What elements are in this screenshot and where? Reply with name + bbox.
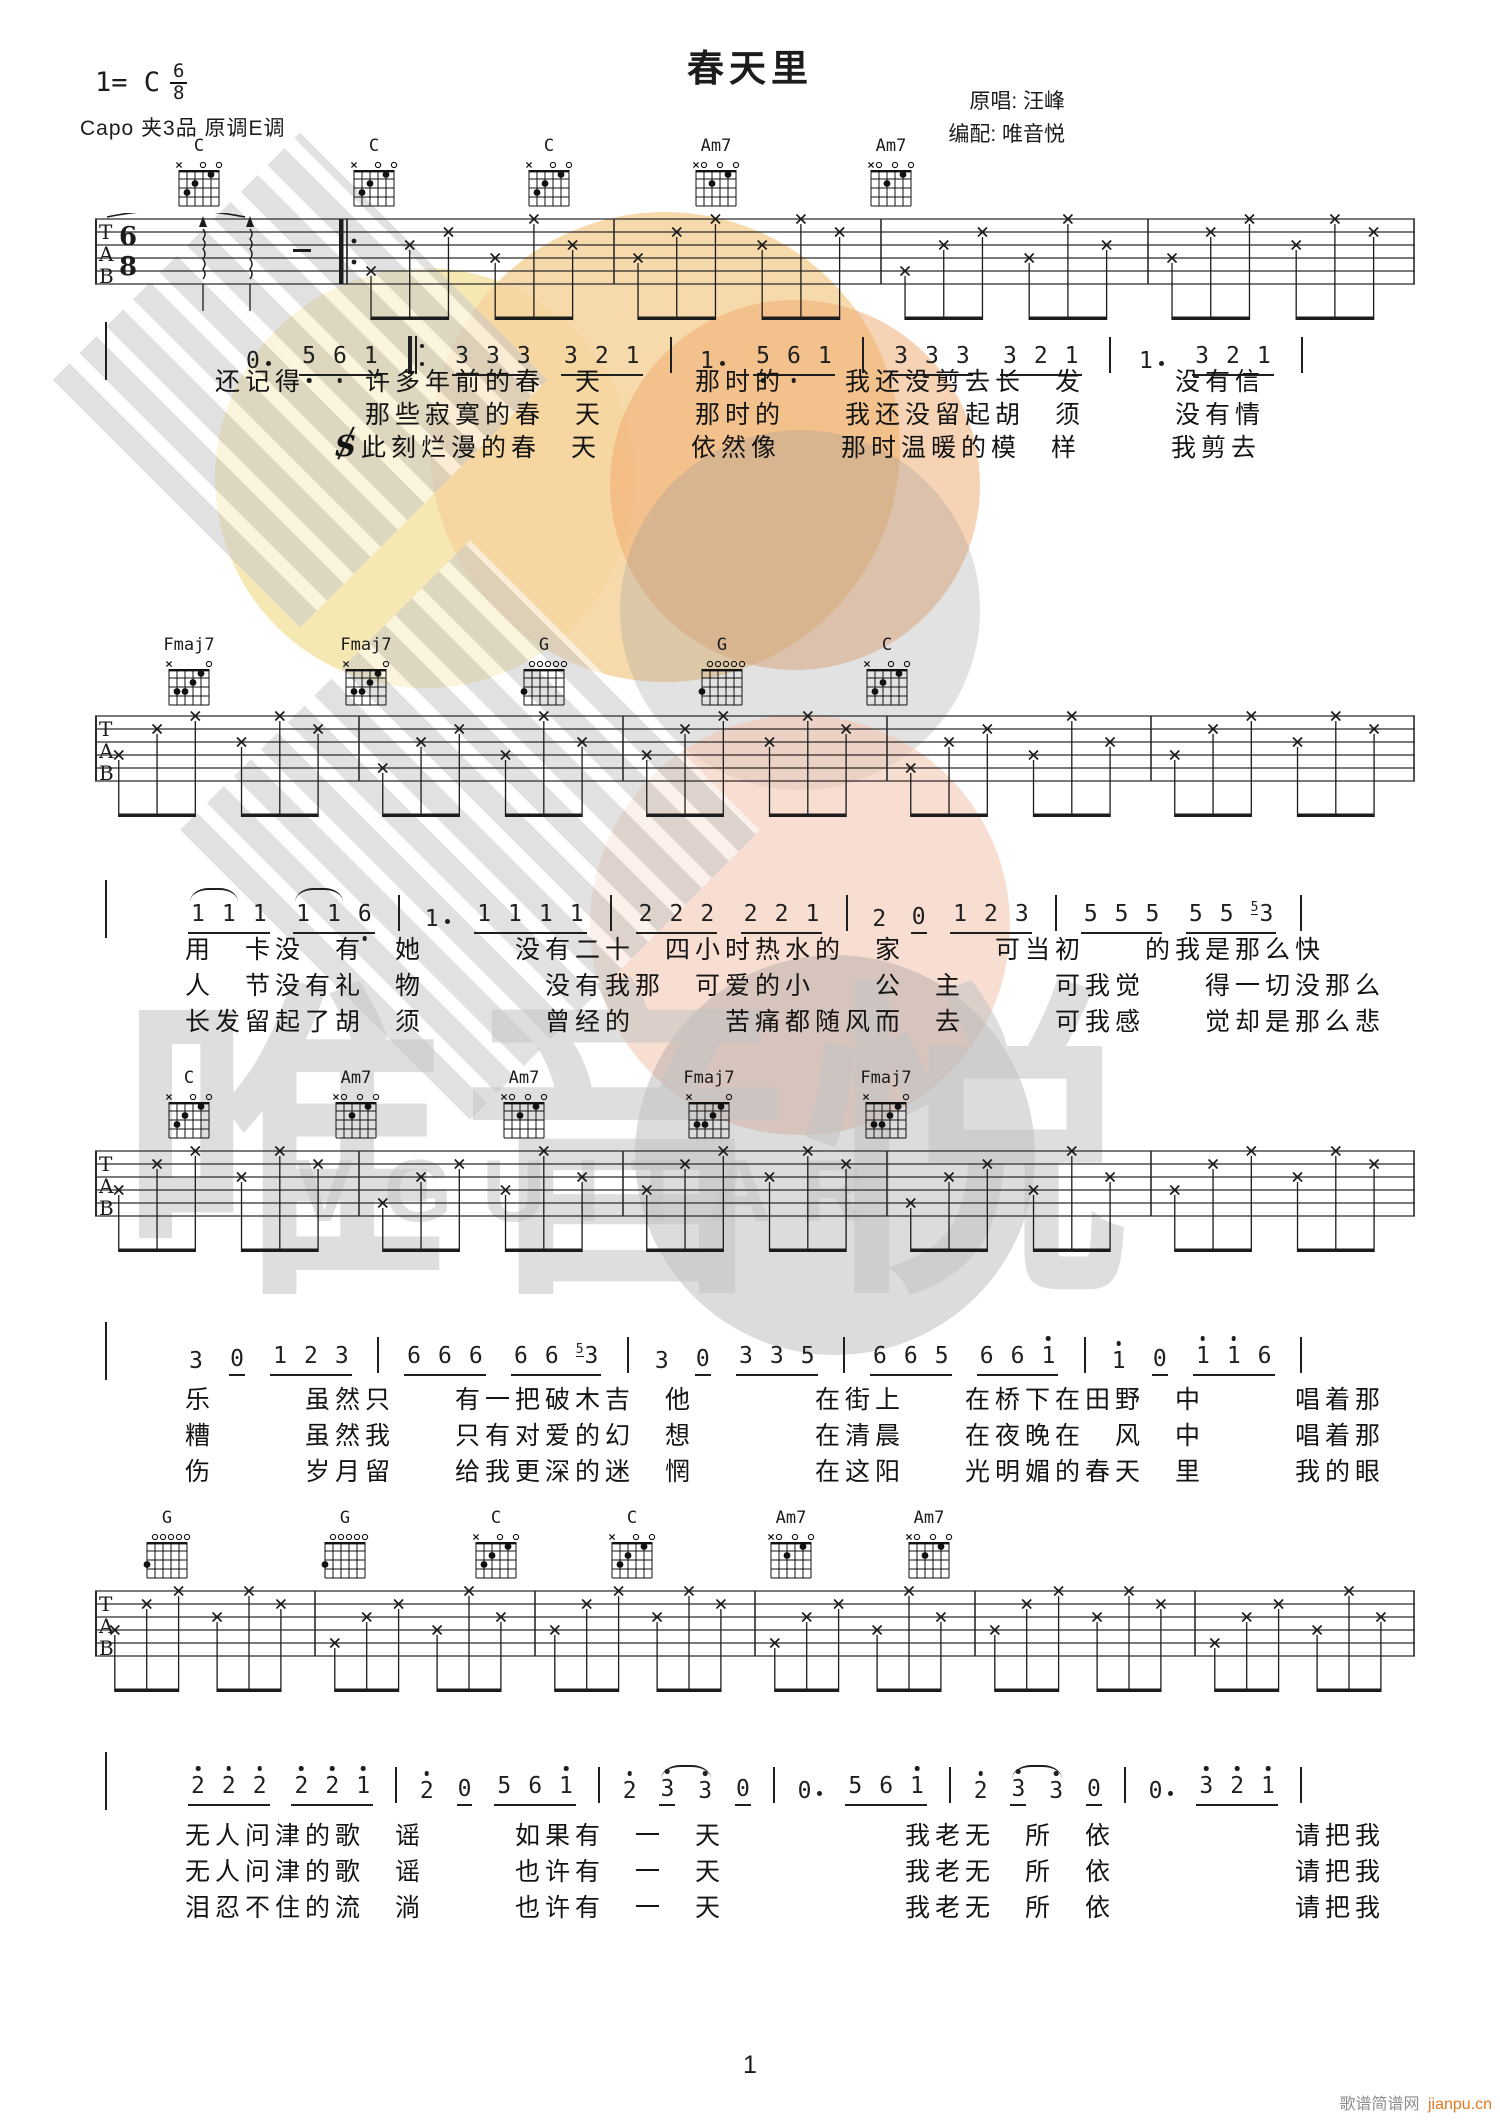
jianpu-note: 2	[221, 1775, 237, 1801]
note-value: 1	[356, 1775, 370, 1798]
note-value: 2	[1230, 1775, 1244, 1798]
octave-dot-high	[1204, 1766, 1209, 1771]
note-value: 5	[1220, 903, 1234, 926]
jianpu-note: 3	[1014, 903, 1030, 929]
chord-name: C	[346, 136, 402, 156]
jianpu-note: 2	[983, 903, 999, 929]
barline	[395, 1767, 397, 1803]
jianpu-beam-group: 321	[1196, 1775, 1278, 1806]
note-value: 6	[879, 1775, 893, 1798]
jianpu-note: 1	[1226, 1345, 1242, 1371]
chord-c: C	[171, 136, 227, 218]
lyric-text: 那些寂寞的春 天 那时的 我还没留起胡 须 没有情	[185, 401, 1265, 429]
site-credit: 歌谱简谱网 jianpu.cn	[1339, 2090, 1492, 2114]
chord-fmaj7: Fmaj7	[161, 635, 217, 717]
chord-name: Am7	[763, 1508, 819, 1528]
note-value: 0	[230, 1348, 244, 1371]
tie-arc	[295, 888, 343, 902]
jianpu-note: 0	[1086, 1778, 1102, 1806]
note-value: 2	[639, 903, 653, 926]
lyric-row: 无人问津的歌 谣 如果有 一 天 我老无 所 依 请把我	[185, 1816, 1385, 1852]
tab-staff: TAB	[95, 1145, 1415, 1273]
tab-staff: TAB	[95, 1585, 1415, 1713]
jianpu-note: 0	[229, 1348, 245, 1376]
jianpu-note: 0	[695, 1348, 711, 1376]
jianpu-note: 1	[221, 903, 237, 929]
jianpu-note: 2	[190, 1775, 206, 1801]
chord-diagram	[143, 1529, 191, 1585]
augmentation-dot	[1168, 1791, 1173, 1796]
note-value: 6	[545, 1345, 559, 1368]
chord-diagram	[863, 656, 911, 712]
chord-name: C	[859, 635, 915, 655]
octave-dot-high	[915, 1766, 920, 1771]
jianpu-note: 2	[1229, 1775, 1245, 1801]
jianpu-note: 1	[272, 1345, 288, 1371]
note-value: 3	[660, 1778, 674, 1801]
jianpu-note: 53	[1250, 903, 1275, 929]
jianpu-note: 5	[1145, 903, 1161, 929]
note-value: 1	[296, 903, 310, 926]
note-value: 2	[420, 1780, 434, 1803]
jianpu-note: 6	[468, 1345, 484, 1371]
jianpu-note: 6	[527, 1775, 543, 1801]
jianpu-note: 2	[743, 903, 759, 929]
note-value: 5	[935, 1345, 949, 1368]
lyric-row: 泪忍不住的流 淌 也许有 一 天 我老无 所 依 请把我	[185, 1888, 1385, 1924]
jianpu-note: 5	[1188, 903, 1204, 929]
chord-name: Fmaj7	[161, 635, 217, 655]
svg-text:T: T	[99, 1592, 113, 1616]
key-signature: 1= C 6 8	[95, 62, 187, 104]
svg-text:A: A	[98, 739, 114, 763]
jianpu-note: 6	[513, 1345, 529, 1371]
time-top: 6	[170, 62, 187, 82]
jianpu-beam-group: 221	[291, 1775, 373, 1806]
lyric-text: 此刻烂漫的春 天 依然像 那时温暖的模 样 我剪去	[361, 434, 1261, 462]
octave-dot-high	[299, 1766, 304, 1771]
note-value: 1	[477, 903, 491, 926]
jianpu-note: 5	[1114, 903, 1130, 929]
note-value: 0	[696, 1348, 710, 1371]
jianpu-note: 3	[659, 1778, 675, 1806]
svg-text:B: B	[99, 264, 114, 288]
barline	[377, 1337, 379, 1373]
jianpu-note: 0	[457, 1778, 473, 1806]
lyric-indent	[185, 434, 335, 462]
segno-icon: S	[335, 429, 361, 463]
jianpu-note: 2	[669, 903, 685, 929]
octave-dot-high	[1235, 1766, 1240, 1771]
octave-dot-high	[1231, 1336, 1236, 1341]
chord-diagram	[867, 157, 915, 213]
note-value: 3	[1049, 1780, 1063, 1803]
jianpu-note: 1	[558, 1775, 574, 1801]
barline	[1300, 1767, 1302, 1803]
chord-name: G	[516, 635, 572, 655]
barline	[610, 895, 612, 931]
jianpu-note: 3	[738, 1345, 754, 1371]
note-value: 1	[910, 1775, 924, 1798]
jianpu-note: 3	[697, 1780, 713, 1806]
note-value: 1	[559, 1775, 573, 1798]
jianpu-note: 6	[903, 1345, 919, 1371]
jianpu-beam-group: 561	[494, 1775, 576, 1806]
jianpu-note: 6	[1257, 1345, 1273, 1371]
jianpu-note: 1	[295, 903, 311, 929]
chord-am7: Am7	[496, 1068, 552, 1150]
note-value: 6	[528, 1775, 542, 1798]
jianpu-note: 0	[1148, 1780, 1175, 1806]
svg-text:B: B	[99, 1636, 114, 1660]
jianpu-note: 5	[934, 1345, 950, 1371]
lyric-row: S此刻烂漫的春 天 依然像 那时温暖的模 样 我剪去	[185, 428, 1261, 464]
jianpu-note: 1	[326, 903, 342, 929]
chord-name: C	[521, 136, 577, 156]
jianpu-note: 5	[847, 1775, 863, 1801]
octave-dot-high	[1201, 1336, 1206, 1341]
jianpu-note: 2	[699, 903, 715, 929]
jianpu-note: 5	[800, 1345, 816, 1371]
note-value: 2	[700, 903, 714, 926]
chord-diagram	[175, 157, 223, 213]
note-value: 2	[744, 903, 758, 926]
jianpu-line: 3012366666533033566566110116	[188, 1326, 1302, 1376]
jianpu-note: 3	[769, 1345, 785, 1371]
jianpu-beam-group: 222	[188, 1775, 270, 1806]
lyric-text: 无人问津的歌 谣 如果有 一 天 我老无 所 依 请把我	[185, 1822, 1385, 1850]
note-value: 2	[623, 1780, 637, 1803]
jianpu-note: 2	[638, 903, 654, 929]
chord-diagram	[520, 656, 568, 712]
chord-c: C	[521, 136, 577, 218]
svg-text:A: A	[98, 1174, 114, 1198]
note-value: 5	[1146, 903, 1160, 926]
note-value: 2	[670, 903, 684, 926]
note-value: 3	[1015, 903, 1029, 926]
note-value: 1	[253, 903, 267, 926]
note-value: 2	[253, 1775, 267, 1798]
lyric-row: 还记得 许多年前的春 天 那时的 我还没剪去长 发 没有信	[185, 362, 1265, 398]
jianpu-note: 2	[293, 1775, 309, 1801]
note-value: 1	[539, 903, 553, 926]
note-value: 0	[458, 1778, 472, 1801]
chord-c: C	[859, 635, 915, 717]
note-value: 1	[1261, 1775, 1275, 1798]
note-value: 0	[1149, 1780, 1163, 1803]
barline	[1301, 337, 1303, 373]
jianpu-note: 1	[569, 903, 585, 929]
chord-c: C	[468, 1508, 524, 1590]
svg-text:6: 6	[119, 222, 137, 252]
chord-diagram	[500, 1089, 548, 1145]
svg-text:B: B	[99, 1196, 114, 1220]
svg-text:B: B	[99, 761, 114, 785]
barline	[1084, 1337, 1086, 1373]
note-value: 2	[222, 1775, 236, 1798]
jianpu-beam-group: 123	[270, 1345, 352, 1376]
lyric-text: 人 节没有礼 物 没有我那 可爱的小 公 主 可我觉 得一切没那么	[185, 972, 1385, 1000]
barline	[627, 1337, 629, 1373]
jianpu-note: 6	[979, 1345, 995, 1371]
jianpu-beam-group: 665	[870, 1345, 952, 1376]
jianpu-beam-group: 666	[404, 1345, 486, 1376]
jianpu-lead-barline	[105, 880, 107, 938]
jianpu-note: 6	[357, 903, 373, 929]
note-value: 2	[304, 1345, 318, 1368]
note-value: 2	[984, 903, 998, 926]
sheet-music-page: 唯音悦 VGUITAR 春天里 1= C 6 8 Capo 夹3品 原调E调 原…	[0, 0, 1500, 2122]
barline	[949, 1767, 951, 1803]
jianpu-note: 3	[1048, 1780, 1064, 1806]
octave-dot-high	[1116, 1341, 1121, 1346]
chord-c: C	[161, 1068, 217, 1150]
jianpu-note: 0	[797, 1780, 824, 1806]
lyric-text: 伤 岁月留 给我更深的迷 惘 在这阳 光明媚的春天 里 我的眼	[185, 1458, 1385, 1486]
jianpu-beam-group: 661	[977, 1345, 1059, 1376]
augmentation-dot	[445, 919, 450, 924]
jianpu-note: 1	[1260, 1775, 1276, 1801]
chord-name: Fmaj7	[681, 1068, 737, 1088]
chord-diagram	[332, 1089, 380, 1145]
jianpu-note: 1	[507, 903, 523, 929]
note-value: 5	[1189, 903, 1203, 926]
chord-name: Am7	[496, 1068, 552, 1088]
lyric-row: 乐 虽然只 有一把破木吉 他 在街上 在桥下在田野 中 唱着那	[185, 1380, 1385, 1416]
jianpu-note: 2	[622, 1780, 638, 1806]
octave-dot-high	[361, 1766, 366, 1771]
jianpu-beam-group: 561	[845, 1775, 927, 1806]
chord-am7: Am7	[688, 136, 744, 218]
barline	[398, 895, 400, 931]
jianpu-note: 6	[406, 1345, 422, 1371]
note-value: 1	[508, 903, 522, 926]
lyric-row: 人 节没有礼 物 没有我那 可爱的小 公 主 可我觉 得一切没那么	[185, 966, 1385, 1002]
note-value: 0	[736, 1778, 750, 1801]
jianpu-note: 6	[437, 1345, 453, 1371]
time-bottom: 8	[170, 82, 187, 104]
note-value: 1	[273, 1345, 287, 1368]
jianpu-note: 1	[476, 903, 492, 929]
barline	[1300, 1337, 1302, 1373]
jianpu-note: 0	[735, 1778, 751, 1806]
tie-arc	[190, 888, 238, 902]
jianpu-note: 3	[1010, 1778, 1026, 1806]
chord-fmaj7: Fmaj7	[338, 635, 394, 717]
jianpu-note: 6	[544, 1345, 560, 1371]
note-value: 0	[1087, 1778, 1101, 1801]
note-value: 1	[1227, 1345, 1241, 1368]
jianpu-note: 53	[575, 1345, 600, 1371]
jianpu-beam-group: 6653	[511, 1345, 601, 1376]
note-value: 2	[294, 1775, 308, 1798]
jianpu-note: 1	[1111, 1350, 1127, 1376]
barline	[1124, 1767, 1126, 1803]
lyric-text: 无人问津的歌 谣 也许有 一 天 我老无 所 依 请把我	[185, 1858, 1385, 1886]
jianpu-note: 5	[1219, 903, 1235, 929]
lyric-row: 那些寂寞的春 天 那时的 我还没留起胡 须 没有情	[185, 395, 1265, 431]
note-value: 0	[912, 906, 926, 929]
note-value: 2	[775, 903, 789, 926]
note-value: 6	[1011, 1345, 1025, 1368]
jianpu-note: 1	[355, 1775, 371, 1801]
note-value: 1	[191, 903, 205, 926]
jianpu-note: 1	[252, 903, 268, 929]
note-value: 6	[469, 1345, 483, 1368]
barline	[773, 1767, 775, 1803]
note-value: 3	[698, 1780, 712, 1803]
note-value: 0	[798, 1780, 812, 1803]
note-value: 5	[1115, 903, 1129, 926]
note-value: 1	[425, 908, 439, 931]
chord-diagram	[698, 656, 746, 712]
chord-name: Fmaj7	[338, 635, 394, 655]
chord-g: G	[516, 635, 572, 717]
note-value: 2	[325, 1775, 339, 1798]
repeat-dot	[420, 344, 424, 348]
chord-name: G	[694, 635, 750, 655]
octave-dot-high	[226, 1766, 231, 1771]
jianpu-note: 2	[774, 903, 790, 929]
jianpu-note: 2	[973, 1780, 989, 1806]
chord-fmaj7: Fmaj7	[858, 1068, 914, 1150]
svg-text:8: 8	[119, 252, 137, 282]
augmentation-dot	[817, 1791, 822, 1796]
chord-c: C	[346, 136, 402, 218]
jianpu-note: 1	[804, 903, 820, 929]
note-value: 6	[1258, 1345, 1272, 1368]
chord-diagram	[525, 157, 573, 213]
jianpu-note: 1	[909, 1775, 925, 1801]
note-value: 5	[1084, 903, 1098, 926]
octave-dot-high	[978, 1771, 983, 1776]
jianpu-note: 2	[252, 1775, 268, 1801]
jianpu-beam-group: 116	[1193, 1345, 1275, 1376]
jianpu-lead-barline	[105, 1752, 107, 1810]
note-value: 1	[222, 903, 236, 926]
chord-diagram	[472, 1529, 520, 1585]
chord-diagram	[862, 1089, 910, 1145]
note-value: 2	[872, 908, 886, 931]
note-value: 1	[1112, 1350, 1126, 1373]
lyric-row: 长发留起了胡 须 曾经的 苦痛都随风而 去 可我感 觉却是那么悲	[185, 1002, 1385, 1038]
grace-note: 5	[1251, 901, 1259, 915]
chord-name: G	[139, 1508, 195, 1528]
note-value: 1	[327, 903, 341, 926]
jianpu-note: 3	[188, 1350, 204, 1376]
lyric-row: 伤 岁月留 给我更深的迷 惘 在这阳 光明媚的春天 里 我的眼	[185, 1452, 1385, 1488]
jianpu-lead-barline	[105, 1322, 107, 1380]
tie-arc	[1012, 1765, 1062, 1779]
jianpu-line: 222221205612330056123300321	[188, 1756, 1302, 1806]
svg-text:T: T	[99, 1152, 113, 1176]
chord-diagram	[342, 656, 390, 712]
tab-staff: TAB68	[95, 213, 1415, 341]
note-value: 1	[1196, 1345, 1210, 1368]
chord-name: Fmaj7	[858, 1068, 914, 1088]
credits: 原唱: 汪峰 编配: 唯音悦	[948, 86, 1065, 151]
note-value: 6	[438, 1345, 452, 1368]
lyric-text: 泪忍不住的流 淌 也许有 一 天 我老无 所 依 请把我	[185, 1894, 1385, 1922]
lyric-row: 糟 虽然我 只有对爱的幻 想 在清晨 在夜晚在 风 中 唱着那	[185, 1416, 1385, 1452]
note-value: 2	[974, 1780, 988, 1803]
jianpu-note: 5	[1083, 903, 1099, 929]
chord-diagram	[905, 1529, 953, 1585]
song-title: 春天里	[0, 38, 1500, 92]
chord-name: C	[161, 1068, 217, 1088]
tie-arc	[661, 1765, 711, 1779]
chord-diagram	[350, 157, 398, 213]
chord-g: G	[139, 1508, 195, 1590]
note-value: 1	[805, 903, 819, 926]
note-value: 3	[335, 1345, 349, 1368]
barline	[1055, 895, 1057, 931]
chord-am7: Am7	[863, 136, 919, 218]
grace-note: 5	[576, 1343, 584, 1357]
time-signature: 6 8	[170, 62, 187, 104]
jianpu-note: 2	[419, 1780, 435, 1806]
chord-g: G	[694, 635, 750, 717]
jianpu-note: 0	[1152, 1348, 1168, 1376]
chord-diagram	[608, 1529, 656, 1585]
lyric-text: 乐 虽然只 有一把破木吉 他 在街上 在桥下在田野 中 唱着那	[185, 1386, 1385, 1414]
note-value: 3	[1259, 903, 1273, 926]
chord-diagram	[685, 1089, 733, 1145]
octave-dot-high	[424, 1771, 429, 1776]
note-value: 3	[1199, 1775, 1213, 1798]
note-value: 5	[497, 1775, 511, 1798]
note-value: 6	[904, 1345, 918, 1368]
jianpu-note: 6	[1010, 1345, 1026, 1371]
key-label: 1= C	[95, 67, 160, 98]
note-value: 3	[739, 1345, 753, 1368]
jianpu-note: 6	[872, 1345, 888, 1371]
barline	[846, 895, 848, 931]
note-value: 2	[191, 1775, 205, 1798]
barline	[1300, 895, 1302, 931]
chord-name: Am7	[328, 1068, 384, 1088]
chord-name: C	[468, 1508, 524, 1528]
svg-text:T: T	[99, 220, 113, 244]
jianpu-line: 11111611111222221201235555553	[188, 884, 1302, 934]
note-value: 6	[873, 1345, 887, 1368]
chord-name: C	[604, 1508, 660, 1528]
jianpu-note: 3	[654, 1350, 670, 1376]
site-url-link[interactable]: jianpu.cn	[1428, 2096, 1492, 2113]
note-value: 3	[189, 1350, 203, 1373]
octave-dot-high	[627, 1771, 632, 1776]
lyric-text: 用 卡没 有 她 没有二十 四小时热水的 家 可当初 的我是那么快	[185, 936, 1325, 964]
svg-text:A: A	[98, 242, 114, 266]
lyric-row: 用 卡没 有 她 没有二十 四小时热水的 家 可当初 的我是那么快	[185, 930, 1325, 966]
octave-dot-high	[1266, 1766, 1271, 1771]
chord-diagram	[165, 656, 213, 712]
octave-dot-high	[257, 1766, 262, 1771]
octave-dot-high	[564, 1766, 569, 1771]
chord-am7: Am7	[763, 1508, 819, 1590]
tab-staff: TAB	[95, 710, 1415, 838]
chord-name: Am7	[901, 1508, 957, 1528]
jianpu-note: 5	[496, 1775, 512, 1801]
site-name: 歌谱简谱网	[1339, 2096, 1419, 2113]
chord-name: G	[317, 1508, 373, 1528]
barline	[598, 1767, 600, 1803]
jianpu-note: 1	[190, 903, 206, 929]
svg-text:T: T	[99, 717, 113, 741]
note-value: 0	[1153, 1348, 1167, 1371]
note-value: 1	[953, 903, 967, 926]
page-number: 1	[0, 2051, 1500, 2080]
